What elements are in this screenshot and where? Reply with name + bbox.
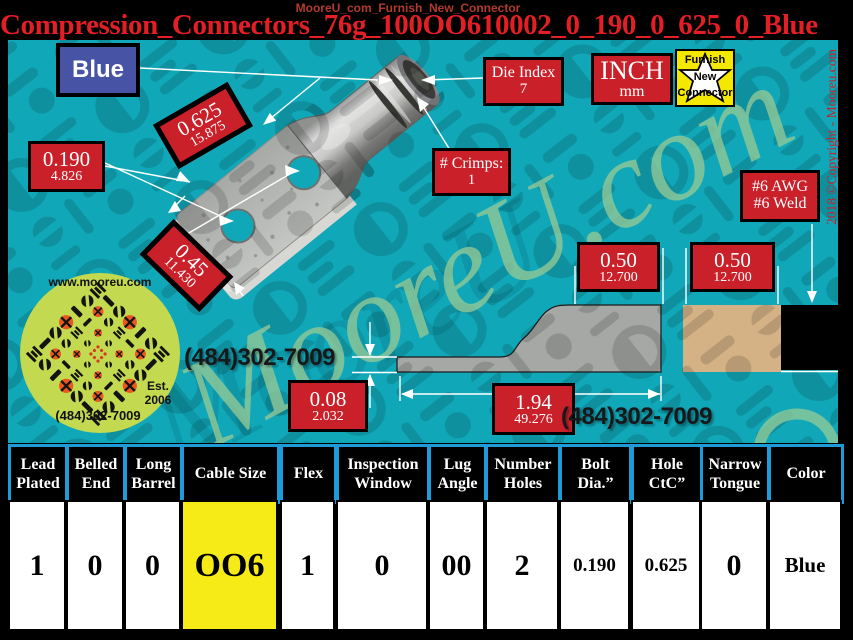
svg-text:(484)302-7009: (484)302-7009 xyxy=(55,408,140,423)
svg-text:2006: 2006 xyxy=(145,393,172,407)
svg-text:Est.: Est. xyxy=(147,379,169,393)
svg-text:www.mooreu.com: www.mooreu.com xyxy=(48,275,152,289)
